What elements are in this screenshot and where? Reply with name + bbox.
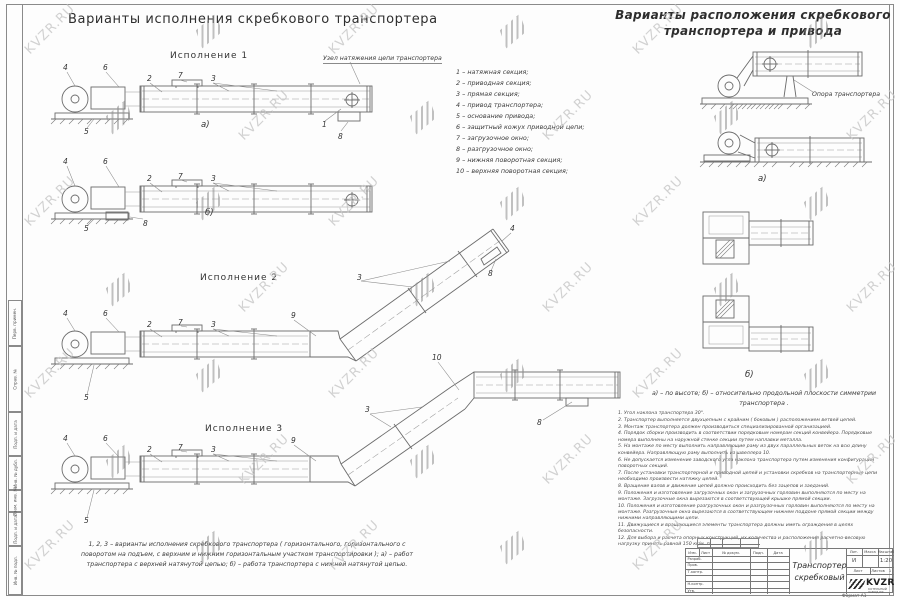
callout: 4 [510,224,515,233]
right-panel-caption: а) – по высоте; б) – относительно продол… [638,389,890,409]
callout: 4 [63,63,68,72]
legend: 1 – натяжная секция; 2 – приводная секци… [456,68,585,178]
callout: 4 [63,157,68,166]
legend-item: 9 – нижняя поворотная секция; [456,156,585,164]
stamp-row-tkontr: Т.контр. [686,569,714,575]
note-line: 6. Не допускается изменение заводского у… [618,458,886,471]
divider [846,574,894,575]
tension-unit-label: Узел натяжения цепи транспортера [323,55,442,64]
stamp-scale-value: 1:20 [878,555,894,568]
stamp-sheet-label: Лист [846,567,870,574]
legend-item: 8 – разгрузочное окно; [456,145,585,153]
kvzr-logo-sub2: ЗАВОД РФ [868,591,884,595]
note-line: 3. Монтаж транспортера должен производит… [618,425,886,431]
notes-block: 1. Угол наклона транспортера 30°. 2. Тра… [618,411,886,549]
page-title-right: Варианты расположения скребкового трансп… [612,8,894,39]
stamp-header-doc: № докум. [712,549,750,556]
arrangement-a2-drawing [700,132,872,167]
callout: 7 [178,318,183,327]
callout: 6 [103,157,108,166]
callout: 7 [178,172,183,181]
stamp-sheets-label: Листов [870,567,886,574]
legend-item: 3 – прямая секция; [456,90,585,98]
page-title-left: Варианты исполнения скребкового транспор… [68,12,438,27]
legend-item: 5 – основание привода; [456,112,585,120]
note-line: 8. Вращение валов и движение цепей должн… [618,484,886,490]
arrangement-b1-drawing [703,212,813,264]
arrangement-a1-drawing [700,50,862,109]
callout: 7 [178,71,183,80]
support-label: Опора транспортера [812,91,880,98]
execution-3-drawing: 4 6 2 7 3 9 3 10 8 5 [51,353,620,525]
legend-item: 7 – загрузочное окно; [456,134,585,142]
callout: 3 [357,273,362,282]
format-label: Формат А1 [842,594,866,599]
view-a-label-right: а) [758,174,767,184]
callout: 2 [147,174,152,183]
callout: 5 [84,516,89,525]
execution-1b-drawing: 4 6 2 7 3 8 5 [51,157,372,233]
callout: 8 [488,269,493,278]
callout: 8 [143,219,148,228]
execution-2-drawing: 4 6 2 7 3 9 3 8 4 5 [51,224,515,402]
callout: 4 [63,434,68,443]
stamp-header-podp: Подп. [750,549,767,556]
callout: 3 [211,320,216,329]
callout: 2 [147,320,152,329]
callout: 3 [211,74,216,83]
callout: 4 [63,309,68,318]
note-line: 4. Порядок сборки производить в соответс… [618,431,886,444]
callout: 2 [147,74,152,83]
execution-2-label: Исполнение 2 [200,273,278,283]
legend-item: 2 – приводная секция; [456,79,585,87]
legend-item: 6 – защитный кожух приводной цепи; [456,123,585,131]
callout: 9 [291,436,296,445]
bottom-caption: 1, 2, 3 – варианты исполнения скребковог… [72,540,422,571]
stamp-doc-title: Транспортер скребковый [789,549,850,594]
note-line: 1. Угол наклона транспортера 30°. [618,411,886,417]
arrangement-b2-drawing [703,296,813,353]
callout: 6 [103,309,108,318]
callout: 9 [291,311,296,320]
legend-item: 10 – верхняя поворотная секция; [456,167,585,175]
callout: 5 [84,393,89,402]
callout: 3 [211,445,216,454]
stamp-header-list: Лист [699,549,712,556]
stamp-header-izm: Изм. [686,549,699,556]
legend-item: 4 – привод транспортера; [456,101,585,109]
callout: 8 [537,418,542,427]
callout: 7 [178,443,183,452]
note-line: 2. Транспортер выполняется двухцепным с … [618,418,886,424]
note-line: 10. Положения и изготовление разгрузочны… [618,504,886,523]
callout: 8 [338,132,343,141]
callout: 2 [147,445,152,454]
view-b-label-right: б) [745,370,754,380]
callout: 1 [322,120,327,129]
callout: 5 [84,224,89,233]
callout: 6 [103,63,108,72]
execution-1-label: Исполнение 1 [170,51,248,61]
view-a-label-exec1: а) [201,120,210,130]
callout: 3 [365,405,370,414]
note-line: 11. Движущиеся и вращающиеся элементы тр… [618,523,886,536]
stamp-sheets-value: 1 [886,567,894,574]
note-line: 5. На монтаже по месту выполнить направл… [618,444,886,457]
callout: 10 [432,353,442,362]
stamp-header-mass: Масса [862,549,878,555]
stamp-extension-table [697,538,759,548]
callout: 5 [84,127,89,136]
view-b-label-exec1: б) [205,208,214,218]
divider [698,544,760,545]
stamp-lit-value: И [846,555,862,568]
execution-1a-drawing: 4 6 2 7 3 1 8 5 [51,62,372,141]
title-block: Изм. Лист № докум. Подп. Дата Разраб. Пр… [685,548,893,593]
legend-item: 1 – натяжная секция; [456,68,585,76]
note-line: 9. Положения и изготовление загрузочных … [618,491,886,504]
drawing-sheet: { "watermark": { "text": "KVZR.RU" }, "t… [0,0,900,600]
kvzr-logo-icon [847,579,865,589]
stamp-header-data: Дата [767,549,789,556]
callout: 6 [103,434,108,443]
divider [686,575,789,576]
execution-3-label: Исполнение 3 [205,424,283,434]
callout: 3 [211,174,216,183]
stamp-row-utv: Утв. [686,588,714,594]
note-line: 7. После установки транспортерной и прив… [618,471,886,484]
